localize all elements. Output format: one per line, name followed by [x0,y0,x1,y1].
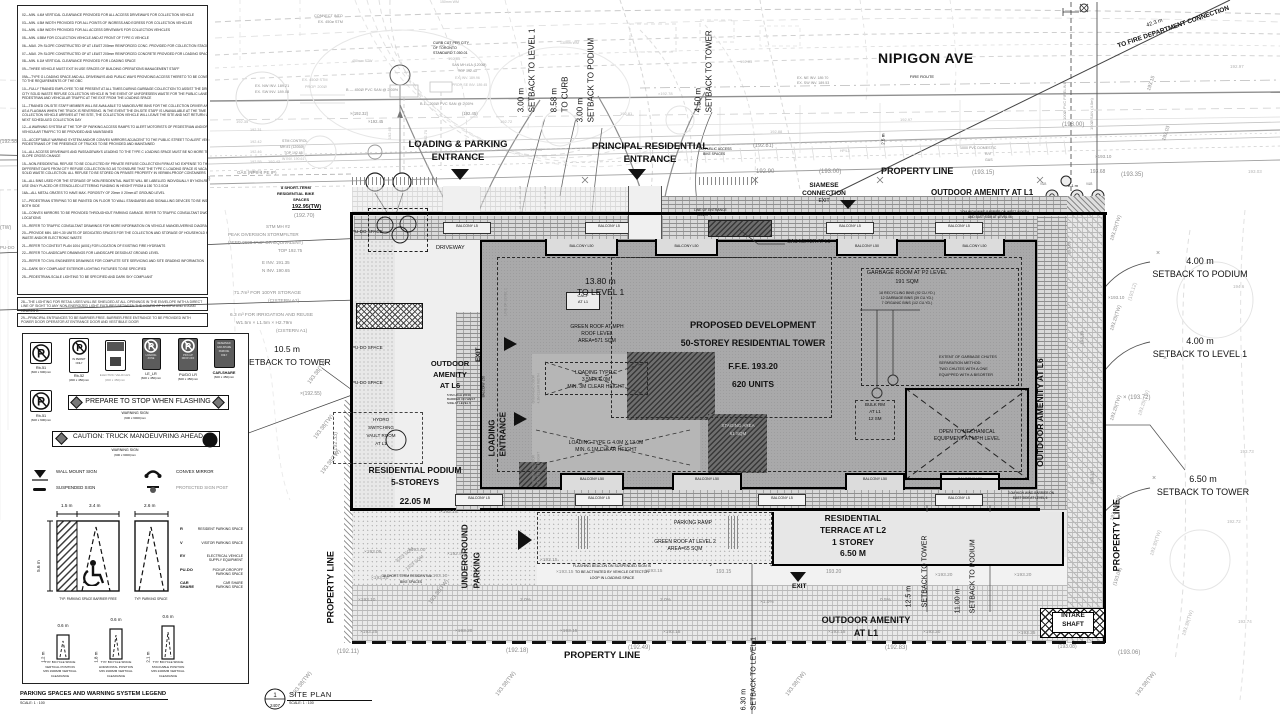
svg-text:1: 1 [273,693,277,699]
svg-text:2407: 2407 [270,703,281,708]
